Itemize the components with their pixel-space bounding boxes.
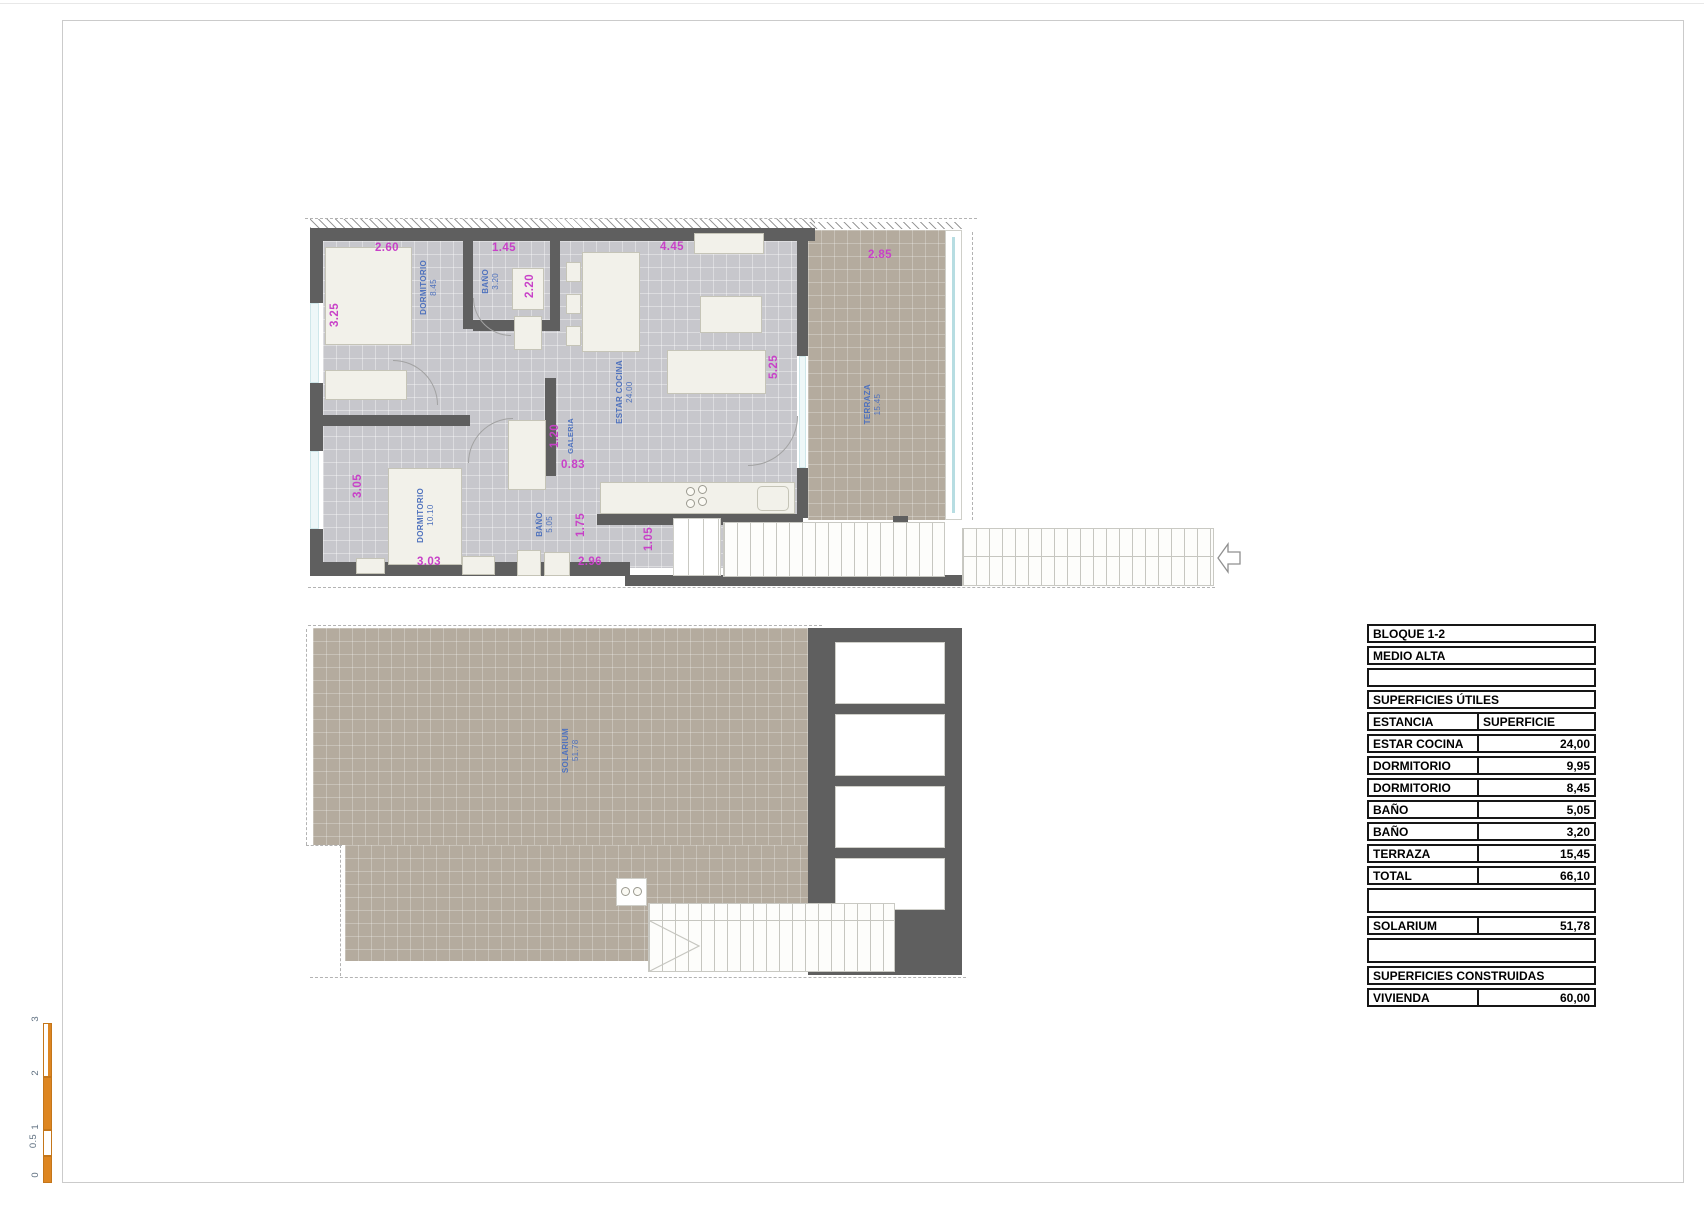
scale-label-1: 1: [30, 1124, 41, 1130]
room-name: DORMITORIO: [416, 488, 426, 543]
table-cell: BLOQUE 1-2: [1369, 626, 1594, 641]
table-cell: DORMITORIO: [1369, 780, 1479, 795]
table-cell: 24,00: [1479, 737, 1594, 751]
table-cell: ESTAR COCINA: [1369, 736, 1479, 751]
table-row-medio-alta: MEDIO ALTA: [1367, 646, 1596, 665]
room-label-bath2: BAÑO 5.05: [535, 512, 555, 537]
toilet-bath1: [514, 316, 542, 350]
wall-bath1-living: [550, 241, 560, 331]
pergola-opening: [835, 786, 945, 848]
table-cell: BAÑO: [1369, 824, 1479, 839]
cooktop-burner: [686, 487, 695, 496]
room-area: 10.10: [426, 488, 436, 543]
scale-bar-segment-1-2: [43, 1077, 52, 1130]
room-name: GALERIA: [566, 418, 575, 454]
washer-galeria: [508, 420, 546, 490]
areas-table: BLOQUE 1-2 MEDIO ALTA SUPERFICIES ÚTILES…: [1367, 624, 1596, 1007]
scale-label-05: 0.5: [28, 1134, 39, 1148]
entry-closet: [673, 518, 721, 576]
table-row-total: TOTAL 66,10: [1367, 866, 1596, 885]
wall-dorm1-bath1: [463, 241, 473, 329]
stair-run-outer: [962, 528, 1214, 586]
table-cell: [1369, 670, 1594, 685]
room-name: BAÑO: [481, 269, 491, 294]
table-row-bloque: BLOQUE 1-2: [1367, 624, 1596, 643]
page-edge-line: [0, 3, 1704, 4]
dining-chair: [566, 326, 581, 346]
scale-bar-segment-2-3-half: [48, 1024, 51, 1076]
window-dorm2: [310, 451, 319, 529]
exterior-wall-hatch: [310, 219, 815, 228]
table-cell: BAÑO: [1369, 802, 1479, 817]
vent-circle: [633, 887, 642, 896]
sink-bath2: [517, 550, 541, 576]
room-name: DORMITORIO: [419, 260, 429, 315]
table-cell: VIVIENDA: [1369, 990, 1479, 1005]
dim-height-galeria: 1.20: [549, 424, 561, 448]
table-cell: 15,45: [1479, 847, 1594, 861]
solarium-left-dashed-line: [306, 629, 307, 845]
drawing-frame-border: [62, 20, 1684, 1183]
table-row-terraza: TERRAZA 15,45: [1367, 844, 1596, 863]
dining-chair: [566, 294, 581, 314]
table-row-bano-1: BAÑO 5,05: [1367, 800, 1596, 819]
scale-label-0: 0: [30, 1172, 41, 1178]
table-row-superficies-utiles: SUPERFICIES ÚTILES: [1367, 690, 1596, 709]
stair-midline: [963, 556, 1213, 557]
solarium-bottom-dashed-line: [310, 977, 966, 978]
wall-left-middle: [310, 383, 323, 451]
room-label-dorm1: DORMITORIO 8.45: [419, 260, 439, 315]
scale-label-2: 2: [30, 1070, 41, 1076]
solarium-top-dashed-line: [308, 625, 822, 626]
room-name: TERRAZA: [863, 384, 873, 424]
room-label-terrace: TERRAZA 15.45: [863, 384, 883, 424]
table-row-dormitorio-1: DORMITORIO 9,95: [1367, 756, 1596, 775]
room-area: 5.05: [545, 512, 555, 537]
table-row-bano-2: BAÑO 3,20: [1367, 822, 1596, 841]
pergola-opening: [835, 642, 945, 704]
sideboard: [694, 233, 764, 254]
drawing-sheet: 2.60 1.45 4.45 2.85 3.25 2.20 5.25 3.05 …: [0, 0, 1704, 1205]
dim-height-entry: 1.05: [643, 527, 655, 551]
scale-bar-segment-05-1: [43, 1130, 52, 1156]
table-cell: 5,05: [1479, 803, 1594, 817]
dim-width-dorm2: 3.03: [417, 556, 441, 568]
room-label-dorm2: DORMITORIO 10.10: [416, 488, 436, 543]
table-row-blank: [1367, 668, 1596, 687]
room-label-bath1: BAÑO 3.20: [481, 269, 501, 294]
table-cell: SOLARIUM: [1369, 918, 1479, 933]
room-area: 51.78: [571, 728, 581, 773]
cooktop-burner: [686, 499, 695, 508]
scale-label-3: 3: [30, 1016, 41, 1022]
table-cell: TERRAZA: [1369, 846, 1479, 861]
table-row-estar-cocina: ESTAR COCINA 24,00: [1367, 734, 1596, 753]
table-cell: 51,78: [1479, 919, 1594, 933]
plan-top-dashed-line: [305, 218, 977, 219]
dim-width-living: 4.45: [660, 241, 684, 253]
stair-start-marker-icon: [649, 920, 701, 972]
terrace-top-hatch: [808, 222, 962, 229]
table-row-superficies-construidas: SUPERFICIES CONSTRUIDAS: [1367, 966, 1596, 985]
cooktop-burner: [698, 485, 707, 494]
table-cell: SUPERFICIES ÚTILES: [1369, 692, 1594, 707]
table-cell: TOTAL: [1369, 868, 1479, 883]
terrace-right-dashed-line: [972, 232, 973, 520]
dining-chair: [566, 262, 581, 282]
dim-width-dorm1: 2.60: [375, 242, 399, 254]
sofa: [667, 350, 766, 394]
room-label-solarium: SOLARIUM 51.78: [561, 728, 581, 773]
plan-bottom-dashed-line: [308, 587, 1215, 588]
room-area: 3.20: [491, 269, 501, 294]
wall-divider-dorm1-dorm2: [323, 415, 470, 426]
dim-width-bath2: 2.96: [578, 556, 602, 568]
wall-left-upper: [310, 241, 323, 303]
table-cell: DORMITORIO: [1369, 758, 1479, 773]
table-cell: 60,00: [1479, 991, 1594, 1005]
dim-height-dorm1: 3.25: [329, 303, 341, 327]
table-row-header: ESTANCIA SUPERFICIE: [1367, 712, 1596, 731]
table-row-vivienda: VIVIENDA 60,00: [1367, 988, 1596, 1007]
dining-table: [582, 252, 640, 352]
dim-height-bath2: 1.75: [575, 513, 587, 537]
table-cell: 3,20: [1479, 825, 1594, 839]
table-row-dormitorio-2: DORMITORIO 8,45: [1367, 778, 1596, 797]
dim-width-galeria: 0.83: [561, 459, 585, 471]
table-cell: SUPERFICIE: [1479, 715, 1594, 729]
terrace-railing-glass: [952, 237, 955, 513]
dim-width-terrace: 2.85: [868, 249, 892, 261]
table-cell: [1369, 890, 1594, 911]
solarium-step-dashed-line: [306, 845, 342, 846]
wall-living-terrace-upper: [797, 241, 808, 356]
table-cell: ESTANCIA: [1369, 714, 1479, 729]
room-name: BAÑO: [535, 512, 545, 537]
cooktop-burner: [698, 497, 707, 506]
table-row-blank: [1367, 938, 1596, 963]
bench-dorm2: [356, 558, 385, 574]
wardrobe-dorm2: [462, 556, 495, 575]
table-cell: 8,45: [1479, 781, 1594, 795]
kitchen-sink: [757, 486, 789, 511]
window-dorm1: [310, 303, 319, 383]
room-name: ESTAR COCINA: [615, 360, 625, 424]
table-cell: 9,95: [1479, 759, 1594, 773]
wall-living-terrace-lower: [797, 468, 808, 518]
table-cell: [1369, 940, 1594, 961]
pergola-opening: [835, 714, 945, 776]
scale-bar-segment-0-05: [43, 1156, 52, 1183]
room-label-living: ESTAR COCINA 24.00: [615, 360, 635, 424]
toilet-bath2: [544, 552, 570, 576]
table-cell: SUPERFICIES CONSTRUIDAS: [1369, 968, 1594, 983]
bed-dorm1: [325, 247, 412, 345]
table-cell: MEDIO ALTA: [1369, 648, 1594, 663]
room-area: 24.00: [625, 360, 635, 424]
wardrobe-dorm1: [325, 370, 407, 400]
table-row-solarium: SOLARIUM 51,78: [1367, 916, 1596, 935]
solarium-left-lower-dashed-line: [340, 845, 341, 976]
vent-circle: [621, 887, 630, 896]
room-area: 15.45: [873, 384, 883, 424]
terrace-sliding-door: [799, 356, 806, 468]
coffee-table: [700, 296, 762, 333]
stair-direction-arrow-icon: [1216, 540, 1242, 576]
room-name: SOLARIUM: [561, 728, 571, 773]
table-row-blank: [1367, 888, 1596, 913]
room-label-galeria: GALERIA: [566, 418, 575, 454]
table-cell: 66,10: [1479, 869, 1594, 883]
terrace-floor: [808, 230, 945, 520]
dim-height-bath1: 2.20: [524, 274, 536, 298]
dim-width-bath1: 1.45: [492, 242, 516, 254]
room-area: 8.45: [429, 260, 439, 315]
dim-height-dorm2: 3.05: [352, 474, 364, 498]
stair-run-inner: [723, 522, 945, 577]
dim-height-living: 5.25: [768, 355, 780, 379]
